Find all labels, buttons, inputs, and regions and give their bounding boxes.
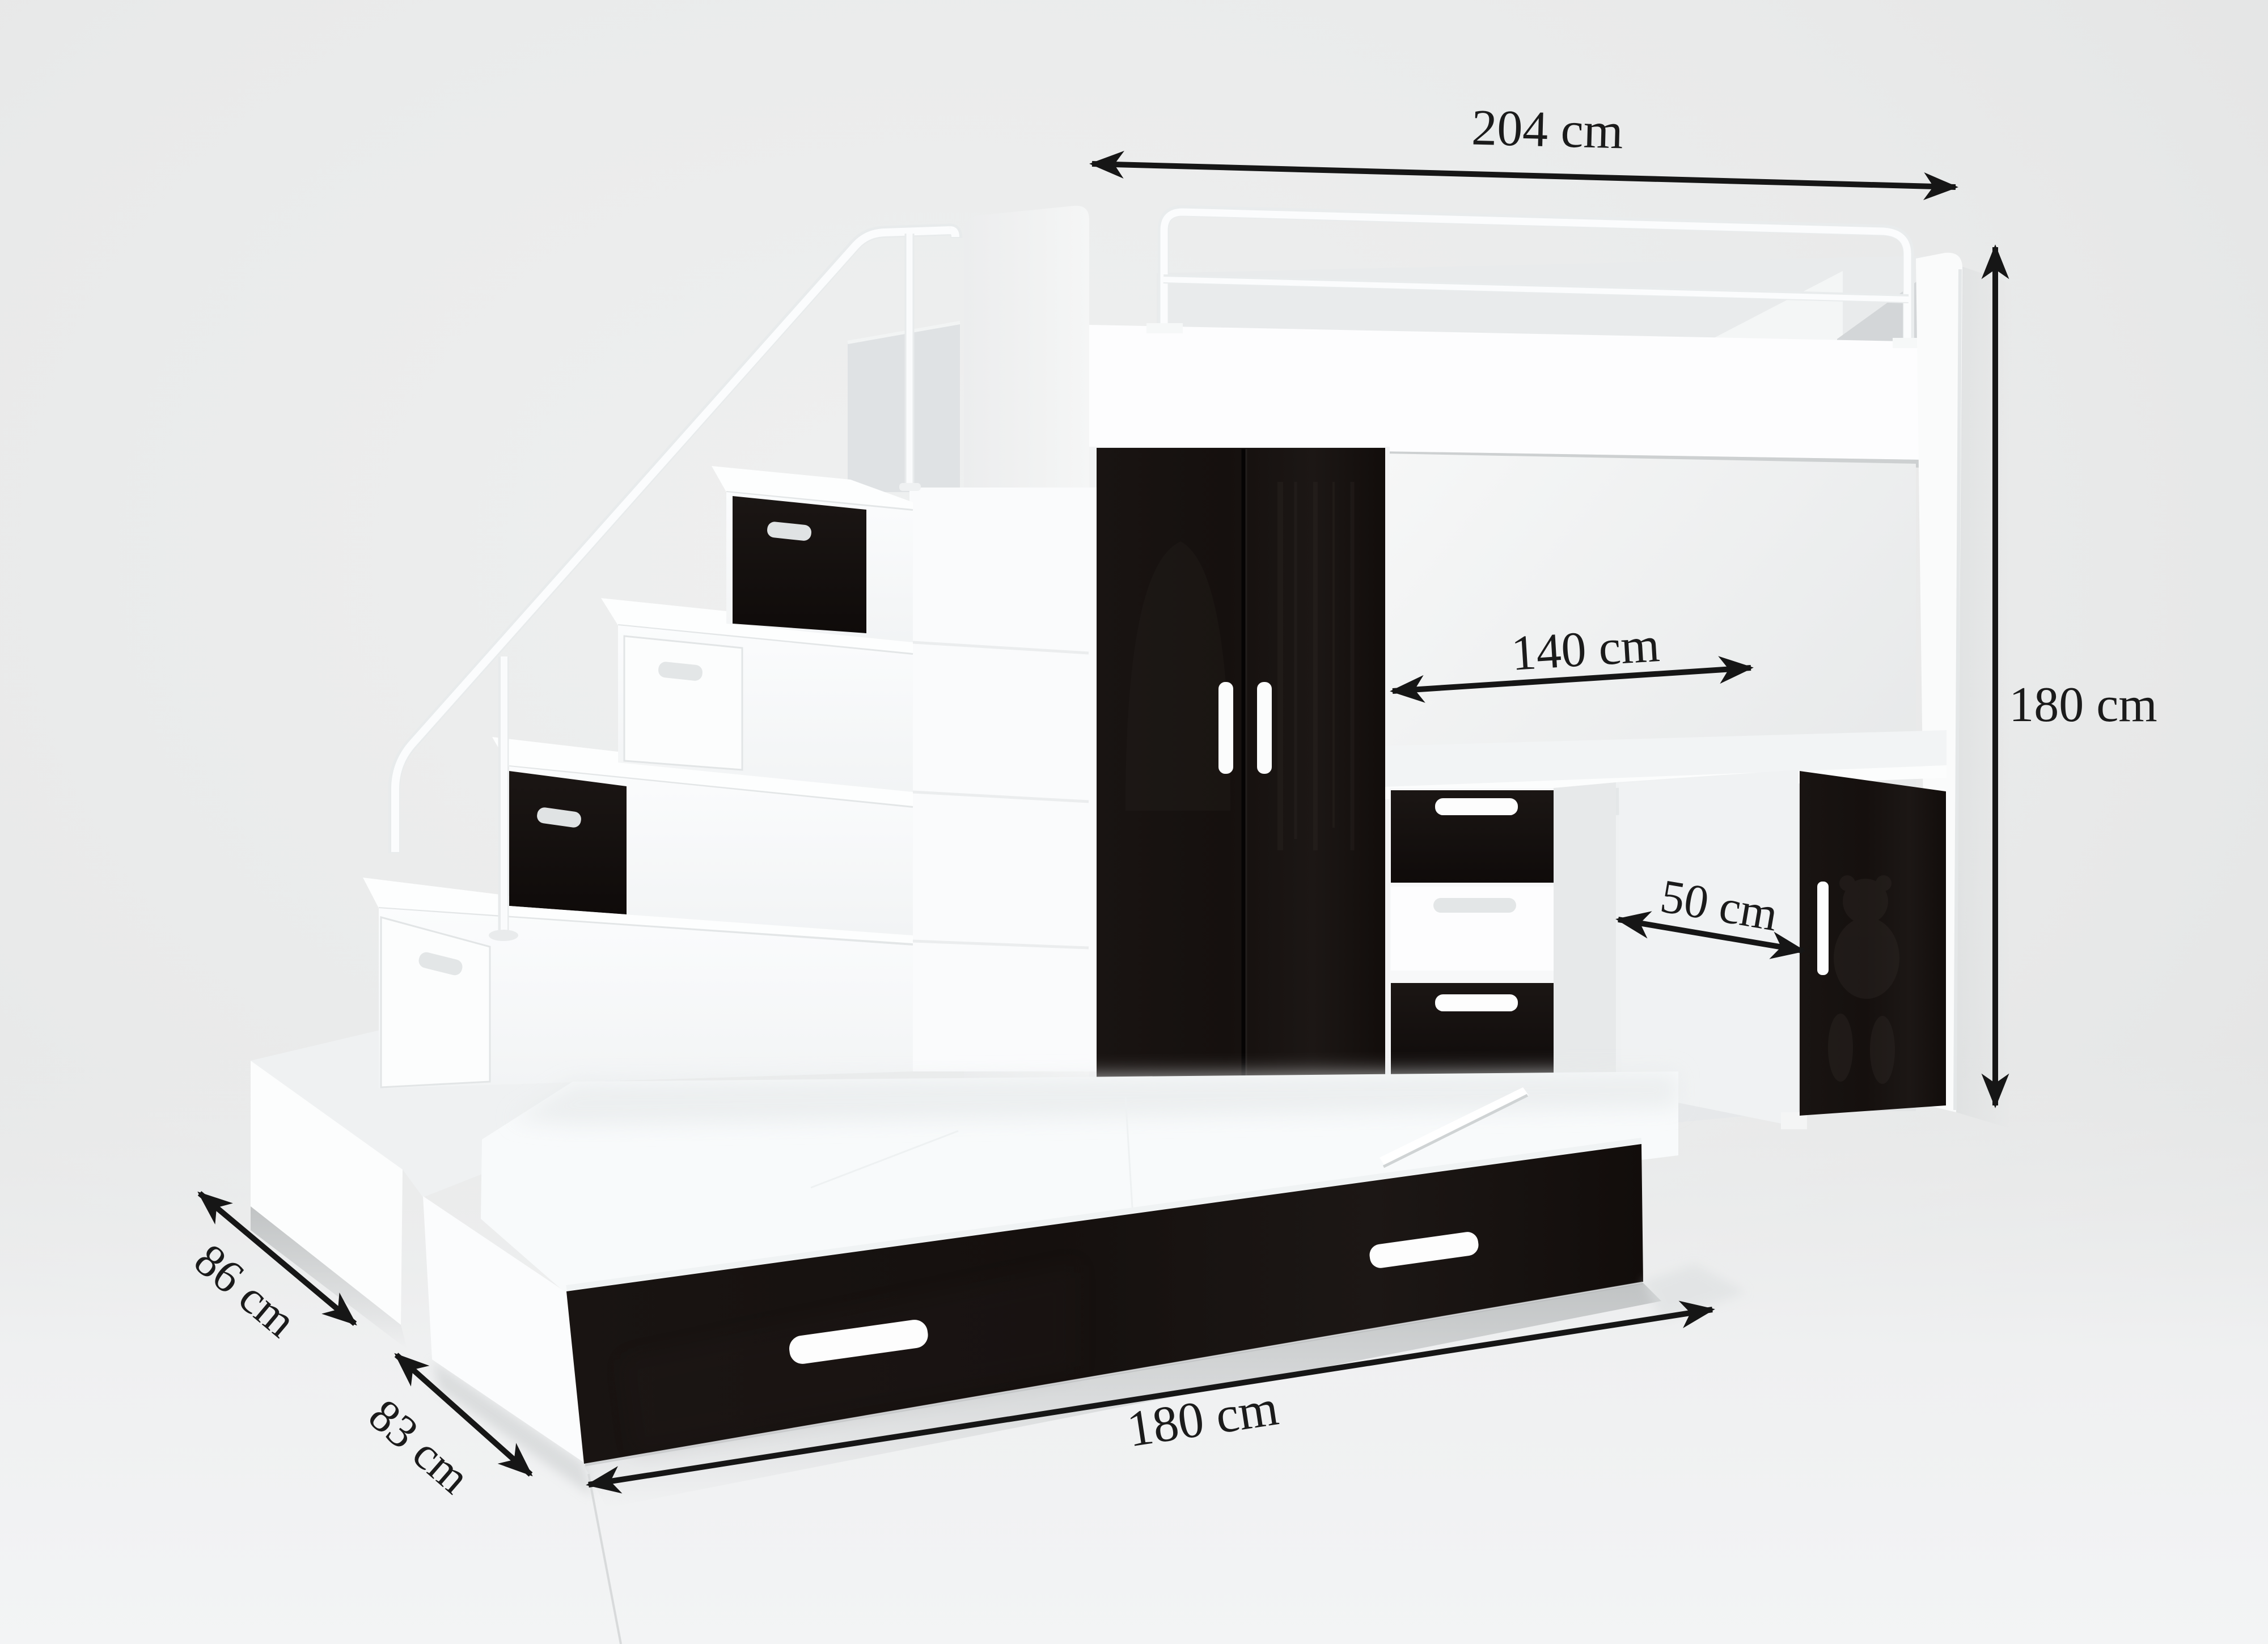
svg-text:140 cm: 140 cm (1510, 617, 1661, 681)
svg-text:204 cm: 204 cm (1471, 100, 1624, 160)
svg-text:180 cm: 180 cm (2009, 677, 2157, 732)
